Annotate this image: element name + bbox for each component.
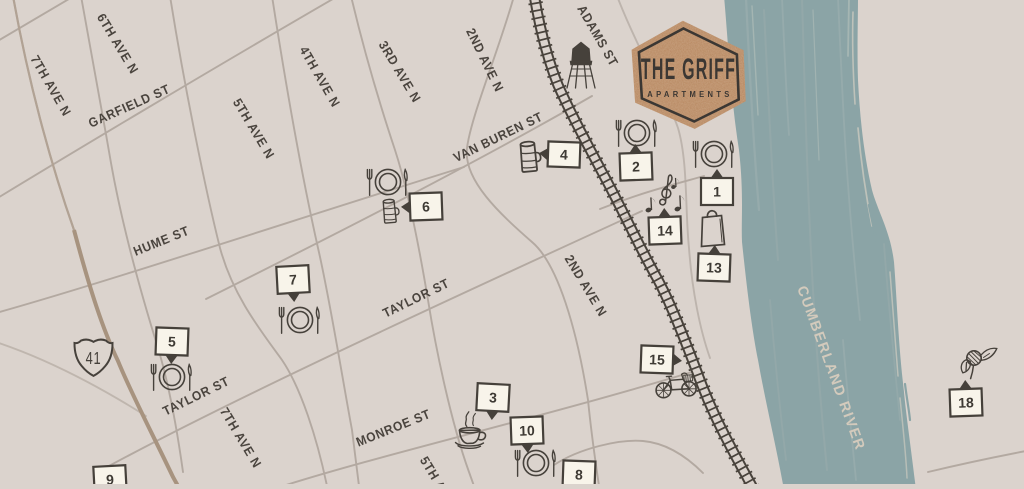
- svg-text:18: 18: [958, 394, 974, 411]
- svg-text:9: 9: [106, 471, 115, 484]
- svg-text:5: 5: [168, 333, 177, 349]
- svg-text:7: 7: [289, 271, 298, 287]
- svg-text:41: 41: [86, 349, 102, 368]
- svg-text:2: 2: [632, 158, 641, 174]
- svg-text:10: 10: [519, 422, 535, 439]
- svg-text:6: 6: [422, 198, 431, 214]
- svg-text:4: 4: [560, 146, 569, 162]
- svg-text:3: 3: [489, 389, 498, 405]
- svg-text:THE GRIFF: THE GRIFF: [641, 54, 736, 86]
- svg-text:13: 13: [706, 259, 722, 276]
- svg-text:APARTMENTS: APARTMENTS: [647, 90, 732, 100]
- svg-text:15: 15: [649, 351, 665, 368]
- svg-text:14: 14: [657, 222, 673, 239]
- svg-text:1: 1: [713, 184, 721, 200]
- svg-text:8: 8: [575, 466, 584, 482]
